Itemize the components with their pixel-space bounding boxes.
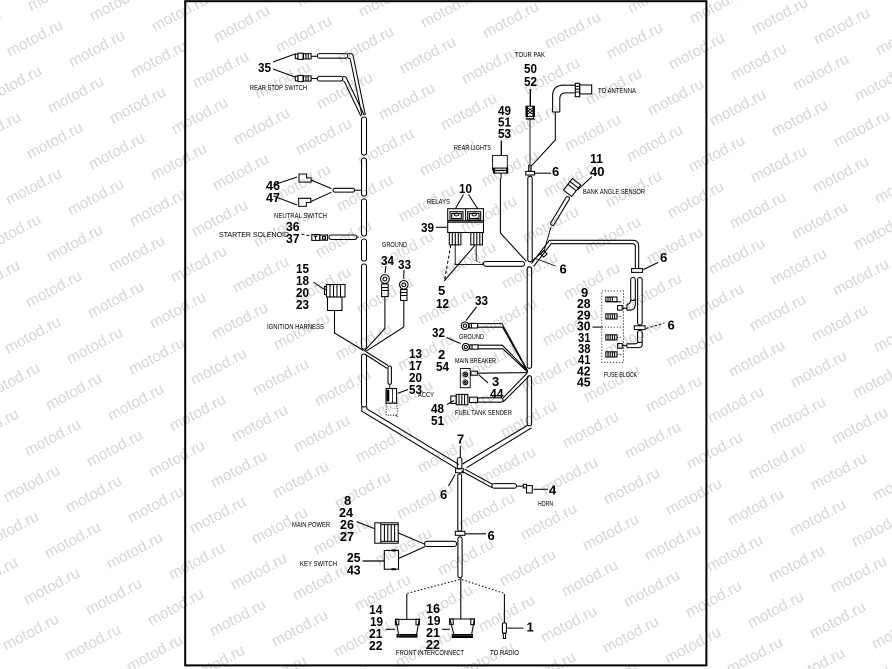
svg-text:12: 12 xyxy=(436,296,449,311)
svg-text:BANK ANGLE SENSOR: BANK ANGLE SENSOR xyxy=(583,189,645,196)
svg-text:51: 51 xyxy=(431,413,444,428)
svg-text:35: 35 xyxy=(258,60,271,75)
svg-text:10: 10 xyxy=(459,181,472,196)
svg-text:HORN: HORN xyxy=(538,501,553,508)
svg-text:TO ANTENNA: TO ANTENNA xyxy=(598,88,636,95)
svg-text:IGNITION HARNESS: IGNITION HARNESS xyxy=(267,324,324,331)
svg-text:34: 34 xyxy=(381,253,395,268)
svg-text:33: 33 xyxy=(475,293,488,308)
svg-text:45: 45 xyxy=(577,375,591,390)
svg-text:44: 44 xyxy=(490,386,504,401)
svg-text:FUSE BLOCK: FUSE BLOCK xyxy=(604,372,637,379)
svg-text:43: 43 xyxy=(347,563,361,578)
svg-text:TOUR PAK: TOUR PAK xyxy=(515,52,545,59)
svg-text:6: 6 xyxy=(668,318,675,333)
svg-text:KEY SWITCH: KEY SWITCH xyxy=(300,561,337,568)
svg-text:GROUND: GROUND xyxy=(459,334,484,341)
svg-text:40: 40 xyxy=(590,164,605,179)
svg-text:39: 39 xyxy=(421,220,434,235)
svg-text:REAR STOP SWITCH: REAR STOP SWITCH xyxy=(250,85,307,92)
svg-text:NEUTRAL SWITCH: NEUTRAL SWITCH xyxy=(274,213,327,220)
svg-text:MAIN BREAKER: MAIN BREAKER xyxy=(455,358,496,365)
svg-text:6: 6 xyxy=(440,487,447,502)
svg-text:22: 22 xyxy=(369,638,383,653)
svg-text:6: 6 xyxy=(560,262,567,277)
svg-text:FUEL TANK SENDER: FUEL TANK SENDER xyxy=(455,410,512,417)
svg-text:52: 52 xyxy=(524,74,537,89)
svg-text:6: 6 xyxy=(488,528,495,543)
svg-text:REAR LIGHTS: REAR LIGHTS xyxy=(454,145,491,152)
svg-text:6: 6 xyxy=(552,164,559,179)
svg-text:27: 27 xyxy=(340,529,354,544)
svg-text:47: 47 xyxy=(266,190,280,205)
svg-text:7: 7 xyxy=(457,432,464,447)
svg-text:ACCY: ACCY xyxy=(418,392,434,399)
svg-text:GROUND: GROUND xyxy=(382,242,407,249)
svg-text:32: 32 xyxy=(432,325,445,340)
svg-text:23: 23 xyxy=(296,297,309,312)
svg-text:53: 53 xyxy=(498,126,511,141)
svg-text:TO RADIO: TO RADIO xyxy=(490,650,519,657)
svg-text:MAIN POWER: MAIN POWER xyxy=(292,522,330,529)
svg-text:54: 54 xyxy=(436,359,450,374)
svg-text:1: 1 xyxy=(527,620,534,635)
svg-text:33: 33 xyxy=(398,257,411,272)
svg-text:RELAYS: RELAYS xyxy=(427,199,450,206)
svg-text:4: 4 xyxy=(549,482,557,497)
svg-text:FRONT INTERCONNECT: FRONT INTERCONNECT xyxy=(396,650,465,657)
svg-text:6: 6 xyxy=(660,250,667,265)
svg-text:STARTER SOLENOID: STARTER SOLENOID xyxy=(219,232,289,239)
